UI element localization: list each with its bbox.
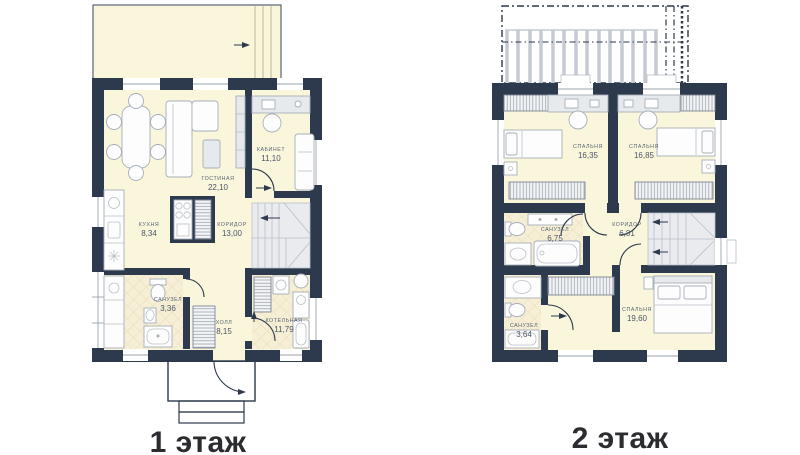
boiler-tub: [293, 320, 309, 348]
desk-chair: [263, 114, 281, 132]
floor2-stairs: [648, 213, 715, 265]
toilet: [509, 223, 525, 236]
entrance-door-arc: [214, 362, 245, 392]
room-label-hall: ХОЛЛ: [216, 320, 233, 326]
svg-text:11,79: 11,79: [274, 325, 294, 334]
svg-text:13,00: 13,00: [222, 229, 243, 238]
pillow: [684, 286, 706, 299]
svg-text:16,35: 16,35: [578, 151, 599, 160]
nightstand: [702, 160, 715, 173]
svg-text:22,10: 22,10: [208, 183, 229, 192]
floor1-title: 1 этаж: [98, 426, 298, 455]
floorplans-drawing: ГОСТИНАЯ 22,10 КАБИНЕТ 11,10 КУХНЯ 8,34 …: [0, 0, 800, 455]
room-label-kitchen: КУХНЯ: [139, 222, 159, 228]
svg-text:3,64: 3,64: [516, 330, 532, 339]
floor2-title: 2 этаж: [520, 422, 720, 455]
boiler-shelves: [254, 277, 271, 312]
pillow: [658, 286, 680, 299]
headboard: [654, 276, 712, 283]
room-label-office: КАБИНЕТ: [257, 147, 286, 153]
desk-chair: [569, 111, 587, 129]
wardrobe: [509, 182, 585, 199]
floor2-pergola: [502, 6, 688, 83]
room-label-living: ГОСТИНАЯ: [202, 176, 235, 182]
entrance-door-opening: [213, 349, 245, 361]
pillow: [702, 131, 713, 153]
room-label-bedroom1: СПАЛЬНЯ: [573, 144, 603, 150]
bedroom3-furniture: [644, 276, 712, 333]
hall-furniture: [193, 306, 215, 348]
pantry-shelves: [195, 200, 211, 239]
laptop: [565, 99, 578, 108]
svg-text:8,15: 8,15: [216, 327, 232, 336]
floor1-terrace: [93, 5, 281, 80]
floor2-plan: СПАЛЬНЯ 16,35 СПАЛЬНЯ 16,85 САНУЗЕЛ 6,75…: [492, 6, 736, 362]
room-label-bathroom-675: САНУЗЕЛ: [541, 227, 569, 233]
bathroom-cabinet: [104, 276, 124, 348]
hall-wardrobe: [193, 306, 215, 348]
floorplan-canvas: ГОСТИНАЯ 22,10 КАБИНЕТ 11,10 КУХНЯ 8,34 …: [0, 0, 800, 455]
pillow: [506, 133, 517, 155]
wardrobe: [635, 182, 713, 199]
laptop: [645, 99, 658, 108]
svg-text:16,85: 16,85: [634, 151, 655, 160]
room-label-bedroom3: СПАЛЬНЯ: [622, 307, 652, 313]
room-label-boiler: КОТЕЛЬНАЯ: [265, 318, 302, 324]
room-label-corridor2: КОРИДОР: [612, 222, 642, 228]
svg-text:6,81: 6,81: [619, 229, 635, 238]
floor1-stairs: [252, 203, 310, 268]
svg-text:6,75: 6,75: [547, 234, 563, 243]
porch-step: [179, 412, 244, 423]
nightstand: [644, 277, 653, 289]
nightstand: [504, 162, 517, 175]
porch: [168, 361, 255, 423]
floor1-plan: ГОСТИНАЯ 22,10 КАБИНЕТ 11,10 КУХНЯ 8,34 …: [92, 5, 322, 423]
room-label-bedroom2: СПАЛЬНЯ: [629, 144, 659, 150]
room-label-bathroom1: САНУЗЕЛ: [154, 297, 182, 303]
office-sofa: [295, 134, 314, 190]
svg-text:11,10: 11,10: [261, 154, 281, 163]
svg-text:8,34: 8,34: [141, 229, 157, 238]
svg-text:19,60: 19,60: [627, 314, 648, 323]
double-bed: [654, 276, 712, 333]
wardrobe: [681, 95, 715, 111]
boiler: [294, 274, 308, 288]
laptop: [262, 100, 275, 109]
coffee-table: [203, 140, 220, 168]
washbasin: [505, 243, 531, 265]
room-label-corridor1: КОРИДОР: [217, 222, 247, 228]
room-label-bathroom-364: САНУЗЕЛ: [510, 323, 538, 329]
sofa: [166, 101, 192, 177]
washing-machine: [273, 276, 289, 294]
porch-step: [179, 401, 244, 412]
wardrobe: [504, 95, 548, 111]
desk-chair: [639, 111, 657, 129]
svg-text:3,36: 3,36: [160, 304, 176, 313]
toilet: [509, 304, 525, 317]
dressing-wardrobe: [548, 277, 614, 295]
